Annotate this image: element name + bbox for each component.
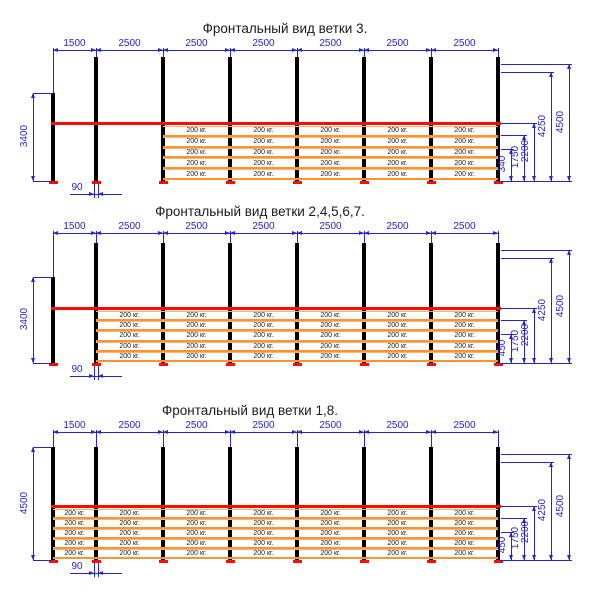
extension-line bbox=[163, 231, 164, 243]
shelf-level: 200 кг. bbox=[230, 549, 297, 559]
extension-line bbox=[33, 363, 52, 364]
shelf-level: 200 кг. bbox=[297, 519, 364, 529]
shelf-level: 200 кг. bbox=[53, 539, 96, 549]
upright-base-plate bbox=[226, 181, 235, 184]
extension-line bbox=[96, 231, 97, 243]
dimension-arrow bbox=[549, 462, 553, 467]
bay-width-label: 1500 bbox=[55, 421, 95, 431]
dimension-arrow bbox=[567, 250, 571, 255]
shelf-level: 200 кг. bbox=[431, 137, 498, 148]
upright-base-plate bbox=[159, 363, 168, 366]
shelf-level: 200 кг. bbox=[230, 137, 297, 148]
shelf-level: 200 кг. bbox=[163, 342, 230, 352]
shelf-level: 200 кг. bbox=[431, 342, 498, 352]
shelf-level: 200 кг. bbox=[431, 519, 498, 529]
bay-width-label: 2500 bbox=[445, 39, 485, 49]
ground-extension-line bbox=[500, 363, 572, 364]
upright-base-plate bbox=[226, 363, 235, 366]
shelf-level: 200 кг. bbox=[230, 519, 297, 529]
base-gap-dimension bbox=[70, 194, 122, 195]
height-dimension-line bbox=[534, 506, 535, 560]
shelf-level: 200 кг. bbox=[431, 352, 498, 362]
shelf-level: 200 кг. bbox=[230, 311, 297, 321]
bay-width-label: 2500 bbox=[445, 222, 485, 232]
view-title: Фронтальный вид ветки 2,4,5,6,7. bbox=[100, 204, 420, 219]
height-dimension-line bbox=[569, 454, 570, 560]
height-dimension-label: 450 bbox=[498, 527, 508, 563]
height-dimension-line bbox=[551, 258, 552, 363]
left-height-dimension bbox=[33, 277, 34, 363]
dimension-arrow bbox=[532, 123, 536, 128]
dimension-arrow bbox=[31, 358, 35, 363]
shelf-level: 200 кг. bbox=[364, 169, 431, 180]
shelf-level: 200 кг. bbox=[431, 169, 498, 180]
shelf-level: 200 кг. bbox=[96, 331, 163, 341]
shelf-level: 200 кг. bbox=[163, 509, 230, 519]
shelf-level: 200 кг. bbox=[431, 539, 498, 549]
shelf-level: 200 кг. bbox=[163, 311, 230, 321]
bay-width-label: 2500 bbox=[311, 421, 351, 431]
extension-line bbox=[33, 447, 52, 448]
left-height-label: 4500 bbox=[20, 485, 30, 521]
extension-line bbox=[230, 430, 231, 447]
dimension-arrow bbox=[31, 176, 35, 181]
shelf-level: 200 кг. bbox=[297, 158, 364, 169]
dimension-arrow bbox=[31, 555, 35, 560]
shelf-level: 200 кг. bbox=[163, 519, 230, 529]
dimension-arrow bbox=[98, 192, 103, 196]
shelf-level: 200 кг. bbox=[364, 519, 431, 529]
upright-base-plate bbox=[360, 181, 369, 184]
upright-base-plate bbox=[159, 181, 168, 184]
base-gap-dimension bbox=[70, 376, 122, 377]
extension-line bbox=[501, 64, 572, 65]
extension-line bbox=[53, 430, 54, 447]
shelf-level: 200 кг. bbox=[230, 158, 297, 169]
dimension-arrow bbox=[549, 72, 553, 77]
height-dimension-label: 4250 bbox=[538, 292, 548, 328]
shelf-level: 200 кг. bbox=[431, 321, 498, 331]
shelf-level: 200 кг. bbox=[53, 519, 96, 529]
shelf-level: 200 кг. bbox=[364, 352, 431, 362]
upright-base-plate bbox=[360, 560, 369, 563]
shelf-level: 200 кг. bbox=[163, 158, 230, 169]
dimension-arrow bbox=[567, 454, 571, 459]
rack-upright bbox=[94, 57, 98, 181]
dimension-arrow bbox=[31, 447, 35, 452]
shelf-level: 200 кг. bbox=[364, 148, 431, 159]
extension-line bbox=[501, 250, 572, 251]
shelf-level: 200 кг. bbox=[431, 549, 498, 559]
extension-line bbox=[498, 430, 499, 447]
technical-drawing: { "colors": { "dimension_blue": "#2424d0… bbox=[0, 0, 600, 600]
height-dimension-line bbox=[551, 72, 552, 181]
shelf-level: 200 кг. bbox=[297, 509, 364, 519]
bay-width-label: 2500 bbox=[244, 421, 284, 431]
height-dimension-label: 4250 bbox=[538, 492, 548, 528]
shelf-level: 200 кг. bbox=[364, 539, 431, 549]
upright-base-plate bbox=[427, 363, 436, 366]
extension-line bbox=[33, 560, 52, 561]
extension-line bbox=[364, 48, 365, 57]
bay-width-label: 2500 bbox=[378, 421, 418, 431]
shelf-level: 200 кг. bbox=[163, 148, 230, 159]
shelf-level: 200 кг. bbox=[230, 509, 297, 519]
rack-upright bbox=[51, 277, 55, 363]
shelf-level: 200 кг. bbox=[230, 321, 297, 331]
bay-width-label: 2500 bbox=[177, 39, 217, 49]
shelf-level: 200 кг. bbox=[364, 321, 431, 331]
shelf-level: 200 кг. bbox=[297, 529, 364, 539]
top-red-beam bbox=[51, 505, 501, 508]
bay-width-label: 2500 bbox=[311, 222, 351, 232]
extension-line bbox=[297, 48, 298, 57]
shelf-level: 200 кг. bbox=[297, 331, 364, 341]
shelf-level: 200 кг. bbox=[364, 509, 431, 519]
shelf-level: 200 кг. bbox=[431, 331, 498, 341]
shelf-level: 200 кг. bbox=[163, 352, 230, 362]
shelf-level: 200 кг. bbox=[364, 529, 431, 539]
shelf-level: 200 кг. bbox=[96, 549, 163, 559]
bay-width-label: 2500 bbox=[244, 39, 284, 49]
height-dimension-line bbox=[569, 250, 570, 363]
shelf-level: 200 кг. bbox=[96, 529, 163, 539]
extension-line bbox=[33, 277, 52, 278]
extension-line bbox=[33, 181, 52, 182]
extension-line bbox=[297, 231, 298, 243]
dimension-arrow bbox=[98, 374, 103, 378]
shelf-level: 200 кг. bbox=[163, 126, 230, 137]
upright-base-plate bbox=[360, 363, 369, 366]
upright-base-plate bbox=[427, 181, 436, 184]
shelf-level: 200 кг. bbox=[230, 126, 297, 137]
upright-base-plate bbox=[293, 560, 302, 563]
extension-line bbox=[94, 563, 95, 577]
rack-upright bbox=[51, 93, 55, 181]
shelf-level: 200 кг. bbox=[96, 509, 163, 519]
extension-line bbox=[96, 48, 97, 57]
shelf-level: 200 кг. bbox=[431, 509, 498, 519]
extension-line bbox=[431, 231, 432, 243]
height-dimension-label: 4500 bbox=[556, 488, 566, 524]
bay-width-label: 2500 bbox=[311, 39, 351, 49]
view-title: Фронтальный вид ветки 1,8. bbox=[90, 403, 410, 418]
shelf-level: 200 кг. bbox=[297, 137, 364, 148]
shelf-level: 200 кг. bbox=[431, 158, 498, 169]
drawing-canvas: Фронтальный вид ветки 3.1500250025002500… bbox=[0, 0, 600, 600]
dimension-arrow bbox=[89, 571, 94, 575]
ground-extension-line bbox=[500, 560, 572, 561]
shelf-level: 200 кг. bbox=[163, 549, 230, 559]
height-dimension-label: 4500 bbox=[556, 288, 566, 324]
left-height-dimension bbox=[33, 447, 34, 560]
height-dimension-label: 4500 bbox=[556, 104, 566, 140]
extension-line bbox=[94, 184, 95, 198]
bay-width-label: 1500 bbox=[55, 222, 95, 232]
shelf-level: 200 кг. bbox=[297, 539, 364, 549]
extension-line bbox=[163, 48, 164, 57]
dimension-arrow bbox=[98, 571, 103, 575]
shelf-level: 200 кг. bbox=[297, 321, 364, 331]
bay-width-label: 2500 bbox=[378, 222, 418, 232]
bay-width-label: 2500 bbox=[110, 421, 150, 431]
shelf-level: 200 кг. bbox=[297, 352, 364, 362]
shelf-level: 200 кг. bbox=[163, 529, 230, 539]
shelf-level: 200 кг. bbox=[163, 321, 230, 331]
shelf-level: 200 кг. bbox=[297, 169, 364, 180]
bay-width-label: 2500 bbox=[244, 222, 284, 232]
shelf-level: 200 кг. bbox=[230, 331, 297, 341]
extension-line bbox=[53, 48, 54, 93]
top-red-beam bbox=[51, 307, 501, 310]
dimension-arrow bbox=[89, 374, 94, 378]
shelf-level: 200 кг. bbox=[431, 311, 498, 321]
bay-width-label: 2500 bbox=[445, 421, 485, 431]
height-dimension-label: 340 bbox=[498, 146, 508, 182]
shelf-level: 200 кг. bbox=[230, 539, 297, 549]
shelf-level: 200 кг. bbox=[431, 529, 498, 539]
top-red-beam bbox=[51, 122, 501, 125]
shelf-level: 200 кг. bbox=[96, 342, 163, 352]
shelf-level: 200 кг. bbox=[96, 352, 163, 362]
shelf-level: 200 кг. bbox=[431, 148, 498, 159]
shelf-level: 200 кг. bbox=[53, 549, 96, 559]
upright-base-plate bbox=[159, 560, 168, 563]
extension-line bbox=[498, 48, 499, 57]
shelf-level: 200 кг. bbox=[230, 352, 297, 362]
height-dimension-label: 2200 bbox=[521, 514, 531, 550]
dimension-arrow bbox=[567, 64, 571, 69]
extension-line bbox=[501, 462, 554, 463]
shelf-level: 200 кг. bbox=[96, 539, 163, 549]
shelf-level: 200 кг. bbox=[364, 331, 431, 341]
shelf-level: 200 кг. bbox=[163, 169, 230, 180]
upright-base-plate bbox=[293, 363, 302, 366]
shelf-level: 200 кг. bbox=[364, 342, 431, 352]
shelf-level: 200 кг. bbox=[230, 169, 297, 180]
dimension-arrow bbox=[31, 93, 35, 98]
height-dimension-line bbox=[551, 462, 552, 560]
dimension-arrow bbox=[31, 277, 35, 282]
bay-width-label: 2500 bbox=[378, 39, 418, 49]
extension-line bbox=[94, 366, 95, 380]
shelf-level: 200 кг. bbox=[297, 311, 364, 321]
extension-line bbox=[96, 430, 97, 447]
shelf-level: 200 кг. bbox=[96, 311, 163, 321]
view-title: Фронтальный вид ветки 3. bbox=[125, 21, 445, 36]
base-gap-label: 90 bbox=[66, 183, 88, 193]
shelf-level: 200 кг. bbox=[53, 509, 96, 519]
extension-line bbox=[297, 430, 298, 447]
bay-width-label: 2500 bbox=[110, 39, 150, 49]
left-height-label: 3400 bbox=[20, 118, 30, 154]
extension-line bbox=[364, 430, 365, 447]
shelf-level: 200 кг. bbox=[163, 539, 230, 549]
height-dimension-label: 2200 bbox=[521, 317, 531, 353]
ground-extension-line bbox=[500, 181, 572, 182]
shelf-level: 200 кг. bbox=[297, 549, 364, 559]
shelf-level: 200 кг. bbox=[230, 148, 297, 159]
shelf-level: 200 кг. bbox=[163, 331, 230, 341]
base-gap-label: 90 bbox=[66, 562, 88, 572]
extension-line bbox=[163, 430, 164, 447]
extension-line bbox=[230, 231, 231, 243]
shelf-level: 200 кг. bbox=[163, 137, 230, 148]
base-gap-label: 90 bbox=[66, 365, 88, 375]
shelf-level: 200 кг. bbox=[431, 126, 498, 137]
shelf-level: 200 кг. bbox=[364, 311, 431, 321]
shelf-level: 200 кг. bbox=[96, 321, 163, 331]
extension-line bbox=[33, 93, 52, 94]
height-dimension-line bbox=[534, 308, 535, 363]
shelf-level: 200 кг. bbox=[96, 519, 163, 529]
upright-base-plate bbox=[427, 560, 436, 563]
extension-line bbox=[498, 231, 499, 243]
height-dimension-label: 2200 bbox=[521, 133, 531, 169]
shelf-level: 200 кг. bbox=[53, 529, 96, 539]
shelf-level: 200 кг. bbox=[230, 342, 297, 352]
dimension-arrow bbox=[532, 308, 536, 313]
shelf-level: 200 кг. bbox=[297, 126, 364, 137]
shelf-level: 200 кг. bbox=[364, 137, 431, 148]
extension-line bbox=[501, 258, 554, 259]
height-dimension-line bbox=[569, 64, 570, 181]
height-dimension-label: 4250 bbox=[538, 108, 548, 144]
bay-width-label: 2500 bbox=[177, 421, 217, 431]
shelf-level: 200 кг. bbox=[230, 529, 297, 539]
height-dimension-line bbox=[534, 123, 535, 181]
extension-line bbox=[501, 454, 572, 455]
height-dimension-label: 450 bbox=[498, 330, 508, 366]
left-height-dimension bbox=[33, 93, 34, 181]
extension-line bbox=[53, 231, 54, 277]
base-gap-dimension bbox=[70, 573, 122, 574]
shelf-level: 200 кг. bbox=[297, 342, 364, 352]
shelf-level: 200 кг. bbox=[364, 126, 431, 137]
left-height-label: 3400 bbox=[20, 301, 30, 337]
extension-line bbox=[501, 72, 554, 73]
dimension-arrow bbox=[549, 258, 553, 263]
bay-width-label: 2500 bbox=[110, 222, 150, 232]
extension-line bbox=[431, 430, 432, 447]
bay-width-label: 2500 bbox=[177, 222, 217, 232]
shelf-level: 200 кг. bbox=[364, 549, 431, 559]
dimension-arrow bbox=[532, 506, 536, 511]
upright-base-plate bbox=[226, 560, 235, 563]
extension-line bbox=[230, 48, 231, 57]
extension-line bbox=[431, 48, 432, 57]
shelf-level: 200 кг. bbox=[364, 158, 431, 169]
dimension-arrow bbox=[89, 192, 94, 196]
extension-line bbox=[364, 231, 365, 243]
shelf-level: 200 кг. bbox=[297, 148, 364, 159]
upright-base-plate bbox=[293, 181, 302, 184]
bay-width-label: 1500 bbox=[55, 39, 95, 49]
